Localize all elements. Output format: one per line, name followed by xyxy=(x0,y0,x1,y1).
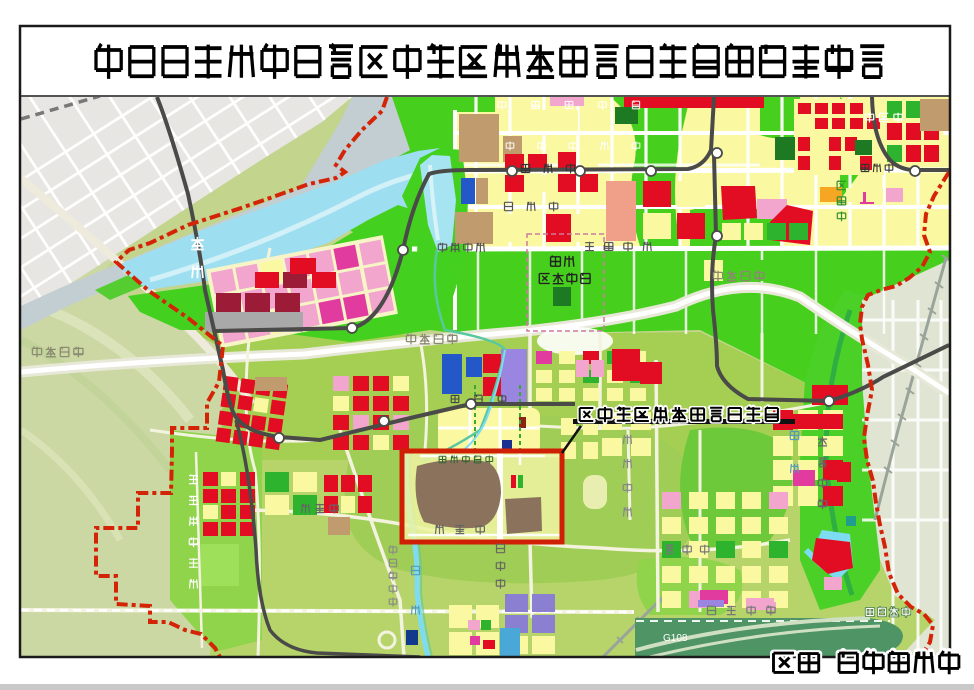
svg-text:G108: G108 xyxy=(663,633,688,644)
